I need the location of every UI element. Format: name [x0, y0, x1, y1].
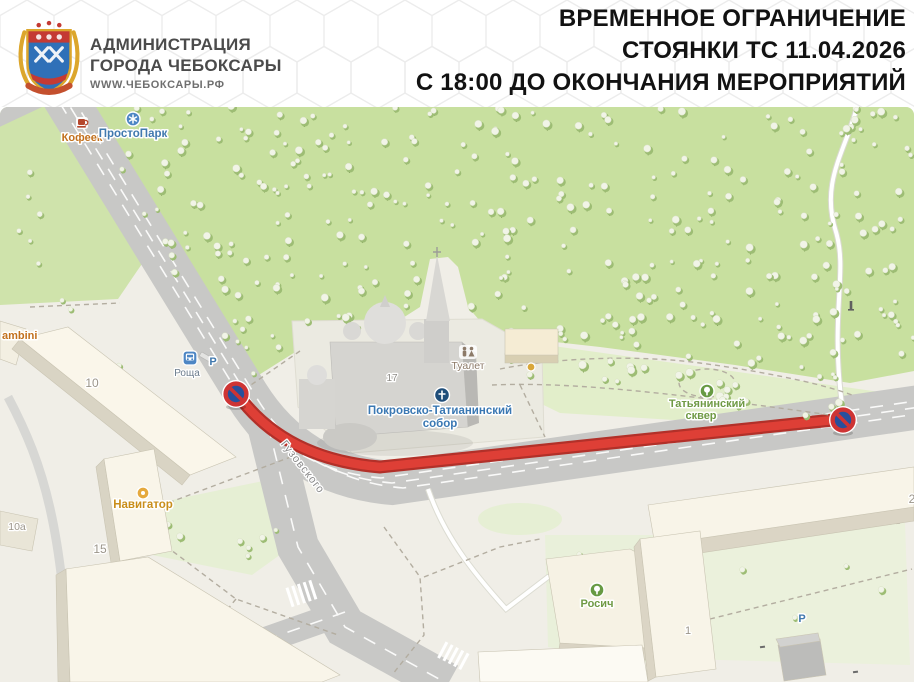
org-website: WWW.ЧЕБОКСАРЫ.РФ	[90, 79, 282, 91]
poi-label-sobor-2: собор	[423, 418, 458, 430]
poi-label-tualet: Туалет	[451, 360, 484, 372]
notice-line1: ВРЕМЕННОЕ ОГРАНИЧЕНИЕ	[416, 3, 906, 35]
building-service-tan	[505, 329, 558, 363]
house-number-10a: 10а	[8, 521, 26, 533]
poster: АДМИНИСТРАЦИЯ ГОРОДА ЧЕБОКСАРЫ WWW.ЧЕБОК…	[0, 0, 914, 682]
poi-label-kofeek: Кофеек	[62, 132, 103, 144]
poi-label-roscha: Роща	[174, 368, 200, 379]
house-number-17: 17	[386, 373, 398, 384]
parking-label-2: Р	[798, 613, 805, 625]
house-number-15: 15	[93, 542, 107, 556]
poi-label-sobor-1: Покровско-Татианинский	[368, 405, 512, 417]
building-gray-small	[776, 633, 826, 681]
prostopark-icon	[126, 112, 140, 126]
church-icon	[435, 388, 450, 403]
map-svg: 17	[0, 107, 914, 682]
navigator-icon	[137, 487, 149, 499]
poi-label-navigator: Навигатор	[113, 499, 173, 511]
cheboksary-coat-of-arms-logo	[16, 20, 82, 96]
parking-label-1: Р	[209, 356, 216, 368]
organization-name: АДМИНИСТРАЦИЯ ГОРОДА ЧЕБОКСАРЫ WWW.ЧЕБОК…	[90, 34, 282, 91]
lawn-patch	[478, 503, 562, 535]
poi-label-rosich: Росич	[581, 598, 614, 610]
house-number-10: 10	[85, 376, 99, 390]
org-line2: ГОРОДА ЧЕБОКСАРЫ	[90, 55, 282, 76]
org-line1: АДМИНИСТРАЦИЯ	[90, 34, 282, 55]
header: АДМИНИСТРАЦИЯ ГОРОДА ЧЕБОКСАРЫ WWW.ЧЕБОК…	[0, 0, 914, 107]
poi-label-bambini: ambini	[2, 330, 37, 342]
poi-label-skver-2: сквер	[685, 410, 716, 422]
park-icon	[700, 384, 714, 398]
restriction-notice: ВРЕМЕННОЕ ОГРАНИЧЕНИЕ СТОЯНКИ ТС 11.04.2…	[416, 3, 906, 99]
notice-line2: СТОЯНКИ ТС 11.04.2026	[416, 35, 906, 67]
rosich-icon	[590, 583, 604, 597]
house-number-2: 2	[909, 492, 914, 506]
poi-label-prostopark: ПростоПарк	[99, 128, 168, 140]
map-canvas: 17	[0, 107, 914, 682]
bus-stop-icon	[183, 351, 197, 365]
poi-gold-dot	[527, 363, 535, 371]
poi-label-skver-1: Татьянинский	[669, 398, 745, 410]
toilet-icon	[459, 345, 477, 359]
house-number-1: 1	[685, 625, 691, 637]
notice-line3: С 18:00 ДО ОКОНЧАНИЯ МЕРОПРИЯТИЙ	[416, 67, 906, 99]
coffee-icon	[76, 117, 88, 129]
